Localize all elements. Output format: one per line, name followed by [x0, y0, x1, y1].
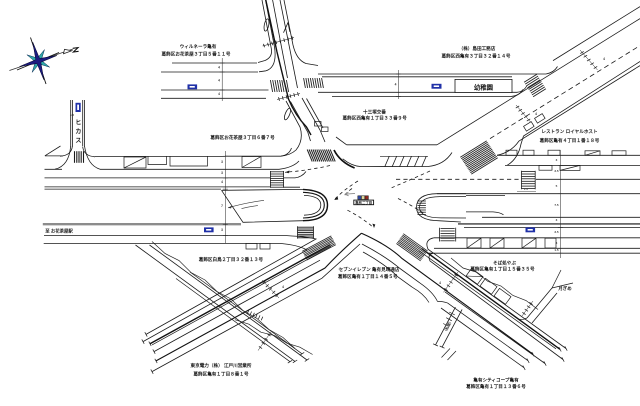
svg-text:葛飾区亀有１丁目８番１号: 葛飾区亀有１丁目８番１号	[192, 371, 249, 378]
svg-text:4: 4	[395, 83, 397, 87]
svg-text:葛飾区亀有１丁目１４番５号: 葛飾区亀有１丁目１４番５号	[337, 273, 398, 280]
svg-text:そば処やぶ: そば処やぶ	[493, 259, 516, 266]
svg-text:3.5: 3.5	[554, 169, 559, 173]
svg-text:葛飾区西亀有１丁目３３番９号: 葛飾区西亀有１丁目３３番９号	[342, 114, 408, 121]
svg-text:葛飾区白鳥２丁目３２番１３号: 葛飾区白鳥２丁目３２番１３号	[198, 256, 264, 263]
svg-text:1.5: 1.5	[524, 187, 529, 191]
svg-text:3: 3	[221, 160, 223, 164]
svg-text:葛飾区お花茶屋３丁目６番７号: 葛飾区お花茶屋３丁目６番７号	[209, 134, 275, 141]
svg-text:7.5: 7.5	[554, 203, 559, 207]
svg-text:4: 4	[282, 285, 284, 289]
svg-text:至 お花茶屋駅: 至 お花茶屋駅	[45, 228, 73, 235]
svg-text:カ: カ	[75, 129, 81, 136]
svg-text:4: 4	[439, 281, 441, 285]
svg-text:3: 3	[221, 171, 223, 175]
svg-text:4: 4	[218, 79, 220, 83]
svg-text:レストラン ロイヤルホスト: レストラン ロイヤルホスト	[541, 128, 597, 135]
svg-text:東京電力（株） 江戸川営業所: 東京電力（株） 江戸川営業所	[191, 362, 252, 369]
svg-text:4: 4	[221, 180, 223, 184]
svg-text:ス: ス	[75, 138, 81, 145]
svg-text:3.6: 3.6	[70, 113, 75, 117]
svg-text:葛飾区西亀有３丁目３２番１４号: 葛飾区西亀有３丁目３２番１４号	[441, 52, 511, 59]
svg-text:葛飾区亀有１丁目１３番６号: 葛飾区亀有１丁目１３番６号	[465, 383, 526, 390]
svg-text:4: 4	[218, 66, 220, 70]
svg-text:葛飾区亀有４丁目１番１８号: 葛飾区亀有４丁目１番１８号	[539, 137, 600, 144]
svg-text:月ぎめ: 月ぎめ	[557, 285, 572, 292]
svg-text:亀有シティコープ亀有: 亀有シティコープ亀有	[472, 377, 519, 384]
svg-text:1.5: 1.5	[554, 248, 559, 252]
svg-text:幼稚園: 幼稚園	[474, 82, 493, 91]
svg-text:十三塚交番: 十三塚交番	[363, 108, 386, 115]
svg-text:ヒ: ヒ	[75, 120, 81, 127]
svg-text:葛飾区お花茶屋３丁目５番１１号: 葛飾区お花茶屋３丁目５番１１号	[161, 51, 231, 58]
svg-text:3: 3	[221, 228, 223, 232]
svg-text:3.5: 3.5	[554, 230, 559, 234]
svg-text:（株）島田工務店: （株）島田工務店	[459, 45, 496, 52]
svg-text:4: 4	[218, 92, 220, 96]
svg-text:葛飾区亀有１丁目１５番３５号: 葛飾区亀有１丁目１５番３５号	[469, 265, 535, 272]
svg-text:4: 4	[535, 112, 537, 116]
svg-text:7: 7	[221, 204, 223, 208]
svg-text:亀有二丁目: 亀有二丁目	[355, 200, 372, 205]
svg-text:セブンイレブン 亀有見晴通店: セブンイレブン 亀有見晴通店	[339, 266, 400, 273]
svg-text:4: 4	[603, 57, 605, 61]
svg-text:ウィルネーラ亀有: ウィルネーラ亀有	[180, 43, 217, 50]
